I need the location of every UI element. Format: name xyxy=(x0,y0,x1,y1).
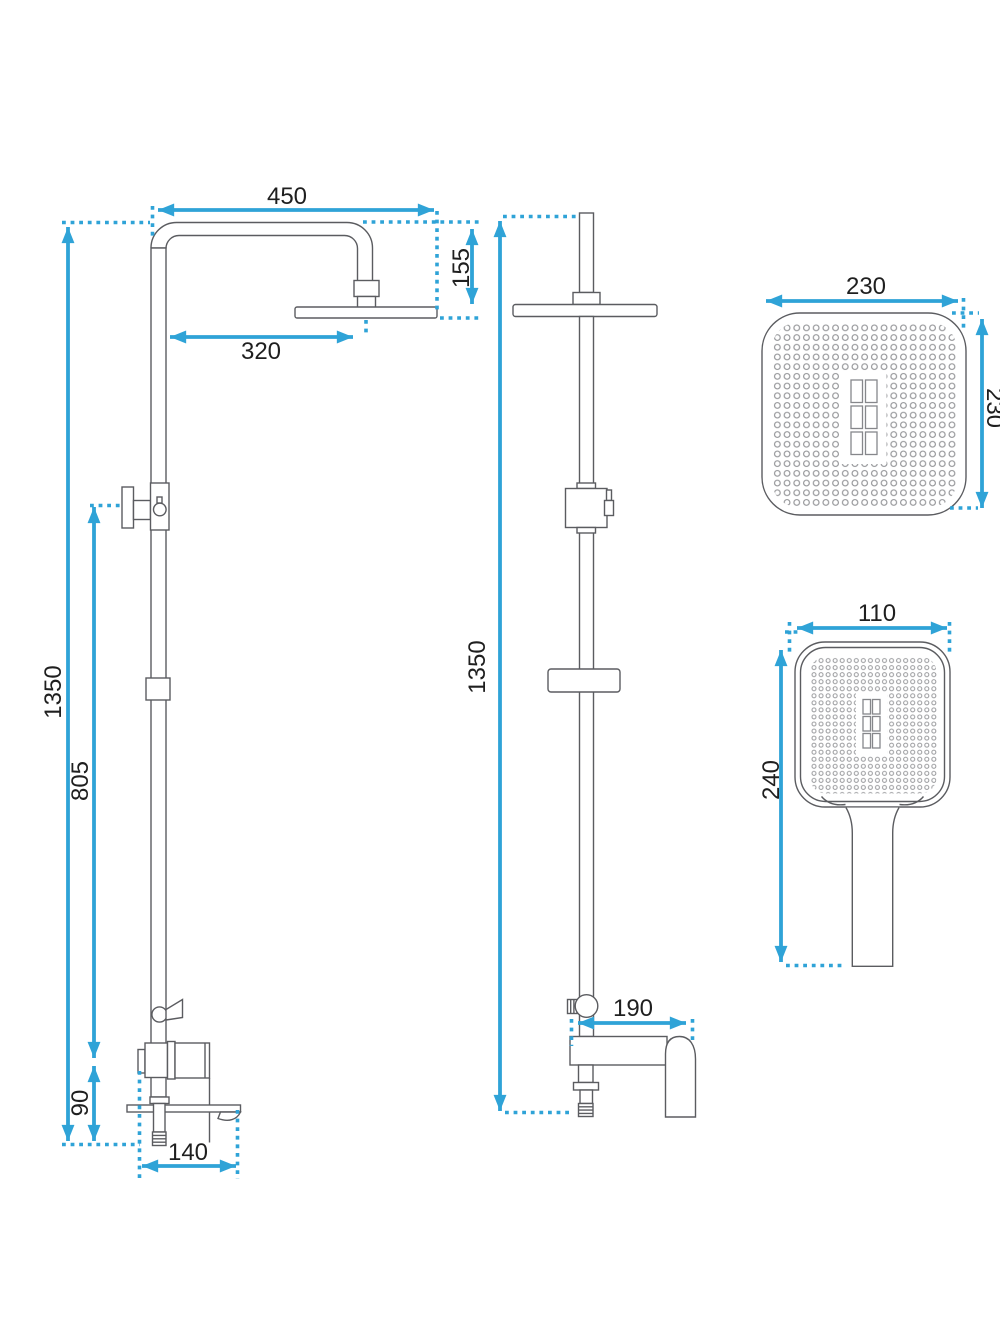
handset-hook-ring xyxy=(152,1007,167,1022)
slot xyxy=(863,717,871,732)
dim-head-depth: 230 xyxy=(981,319,1000,508)
wall-bracket-arm xyxy=(134,501,151,520)
dim-outlet-height: 90 xyxy=(67,1066,94,1141)
shower-arm-inner xyxy=(166,236,358,281)
spout-body xyxy=(570,1037,667,1066)
mixer-rings xyxy=(168,1042,176,1080)
overhead-shower-plate xyxy=(295,307,437,318)
dim-bracket-height: 805 xyxy=(67,507,94,1058)
dim-value: 230 xyxy=(846,273,886,300)
dim-hand-length: 240 xyxy=(758,650,785,962)
mixer-body-left xyxy=(145,1043,168,1078)
hand-shower-view xyxy=(795,642,950,966)
dim-head-drop: 155 xyxy=(448,229,475,304)
outlet-pipe-side xyxy=(580,1090,593,1104)
slot xyxy=(851,380,863,403)
slot xyxy=(866,406,878,429)
shower-arm-outer xyxy=(151,223,373,281)
dim-head-width: 230 xyxy=(766,273,958,301)
outlet-flange-front xyxy=(150,1097,169,1104)
slider-box xyxy=(566,489,608,528)
dim-head-reach: 320 xyxy=(170,337,353,365)
spout-end-cap xyxy=(666,1037,696,1118)
head-slot-area xyxy=(842,372,887,464)
dim-value: 1350 xyxy=(40,665,67,718)
dim-value: 90 xyxy=(67,1090,94,1117)
dim-value: 190 xyxy=(613,995,653,1022)
dim-value: 450 xyxy=(267,183,307,210)
outlet-pipe-front xyxy=(154,1104,166,1133)
side-head-plate xyxy=(513,305,657,317)
dim-value: 230 xyxy=(981,388,1000,428)
riser-pole xyxy=(151,248,166,1097)
bracket-knob-stem xyxy=(157,497,162,503)
hand-slot-area xyxy=(856,693,887,756)
dim-value: 155 xyxy=(448,248,475,288)
side-view xyxy=(513,213,696,1117)
dim-total-height-front: 1350 xyxy=(40,227,68,1141)
outlet-pipe-side-upper xyxy=(579,1065,594,1083)
slot xyxy=(866,432,878,455)
overhead-shower-top-view xyxy=(762,313,966,515)
dim-value: 1350 xyxy=(464,640,491,693)
handset-hook xyxy=(166,1000,183,1021)
technical-drawing-page: 450 155 320 1350 805 90 140 1350 xyxy=(0,0,1000,1334)
shower-set-dimension-drawing: 450 155 320 1350 805 90 140 1350 xyxy=(0,0,1000,1334)
dim-total-height-side: 1350 xyxy=(464,221,500,1111)
dim-value: 805 xyxy=(67,761,94,801)
dim-value: 240 xyxy=(758,760,785,800)
slider-collar-top xyxy=(577,483,596,489)
slider-knob xyxy=(605,501,614,516)
head-cone-upper xyxy=(354,281,379,297)
slider-knob-stem xyxy=(607,490,612,501)
dim-arm-width: 450 xyxy=(158,183,434,210)
head-cone-lower xyxy=(358,297,376,308)
dim-value: 320 xyxy=(241,338,281,365)
dim-value: 140 xyxy=(168,1139,208,1166)
slider-collar-bottom xyxy=(577,528,596,534)
side-head-collar xyxy=(573,293,600,305)
mixer-shelf xyxy=(127,1105,241,1112)
slot xyxy=(873,734,881,749)
slot xyxy=(863,734,871,749)
wall-bracket-flange xyxy=(122,487,134,528)
side-top-pipe xyxy=(580,213,594,293)
outlet-flange-side xyxy=(574,1083,599,1091)
hand-shower-handle xyxy=(846,808,899,967)
slot xyxy=(873,717,881,732)
dim-hand-width: 110 xyxy=(797,600,947,628)
mixer-handle-nub xyxy=(138,1050,145,1074)
bracket-knob xyxy=(154,503,167,516)
dim-value: 110 xyxy=(858,600,896,627)
slot xyxy=(866,380,878,403)
slot xyxy=(863,700,871,715)
slot xyxy=(851,406,863,429)
soap-dish xyxy=(548,669,620,692)
diverter-knob xyxy=(575,995,598,1018)
slot xyxy=(873,700,881,715)
pole-connector xyxy=(146,678,170,700)
slot xyxy=(851,432,863,455)
